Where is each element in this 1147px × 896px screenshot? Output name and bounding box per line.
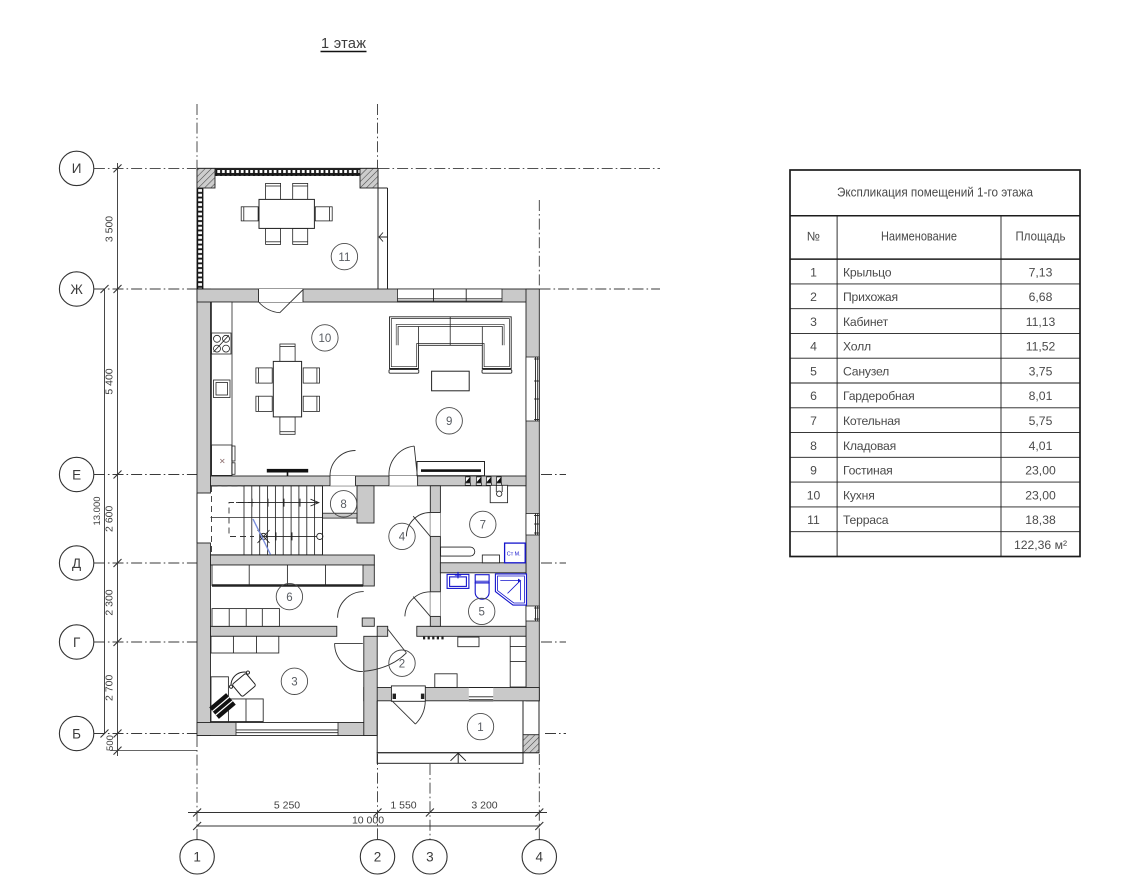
svg-text:3: 3: [810, 315, 817, 329]
svg-text:11: 11: [807, 513, 820, 527]
svg-text:Прихожая: Прихожая: [843, 290, 898, 304]
svg-text:23,00: 23,00: [1025, 488, 1056, 502]
svg-text:13.000: 13.000: [92, 496, 103, 525]
svg-text:Гостиная: Гостиная: [843, 464, 893, 478]
svg-text:500: 500: [105, 735, 116, 751]
svg-text:3 200: 3 200: [471, 800, 497, 812]
svg-text:3: 3: [291, 677, 297, 689]
svg-text:3: 3: [426, 850, 434, 865]
svg-text:4: 4: [810, 340, 817, 354]
svg-text:2: 2: [810, 290, 817, 304]
svg-text:1: 1: [810, 265, 817, 279]
svg-text:Крыльцо: Крыльцо: [843, 265, 892, 279]
svg-text:2 600: 2 600: [104, 506, 116, 532]
svg-text:7: 7: [480, 520, 486, 532]
svg-text:Гардеробная: Гардеробная: [843, 389, 915, 403]
svg-text:18,38: 18,38: [1025, 513, 1056, 527]
svg-text:Г: Г: [73, 635, 81, 650]
svg-text:5 400: 5 400: [104, 368, 116, 394]
svg-text:Ст М.: Ст М.: [507, 552, 521, 558]
svg-text:5: 5: [478, 607, 484, 619]
svg-text:2 300: 2 300: [104, 589, 116, 615]
svg-text:10: 10: [319, 333, 332, 345]
svg-text:6,68: 6,68: [1029, 290, 1053, 304]
svg-text:Кладовая: Кладовая: [843, 439, 896, 453]
svg-text:4,01: 4,01: [1029, 439, 1053, 453]
svg-text:6: 6: [286, 592, 292, 604]
svg-text:1 этаж: 1 этаж: [321, 36, 366, 52]
svg-text:Экспликация помещений 1-го эта: Экспликация помещений 1-го этажа: [837, 185, 1034, 200]
svg-text:8: 8: [810, 439, 817, 453]
svg-text:2: 2: [374, 850, 382, 865]
svg-text:Наименование: Наименование: [881, 229, 957, 243]
svg-text:Кабинет: Кабинет: [843, 315, 889, 329]
svg-text:И: И: [72, 161, 82, 176]
svg-text:1: 1: [477, 722, 483, 734]
svg-text:Терраса: Терраса: [843, 513, 889, 527]
svg-text:5 250: 5 250: [274, 800, 300, 812]
svg-text:8,01: 8,01: [1029, 389, 1053, 403]
svg-text:23,00: 23,00: [1025, 464, 1056, 478]
svg-text:2: 2: [399, 658, 405, 670]
svg-text:4: 4: [536, 850, 544, 865]
svg-text:11,13: 11,13: [1026, 315, 1056, 329]
svg-text:5: 5: [810, 364, 817, 378]
svg-text:8: 8: [340, 499, 346, 511]
svg-text:№: №: [807, 229, 820, 243]
svg-text:122,36 м²: 122,36 м²: [1014, 538, 1067, 552]
svg-text:11: 11: [338, 252, 350, 264]
svg-text:Д: Д: [72, 556, 81, 571]
svg-text:7: 7: [810, 414, 817, 428]
svg-text:Санузел: Санузел: [843, 364, 889, 378]
svg-text:6: 6: [810, 389, 817, 403]
svg-text:Кухня: Кухня: [843, 488, 875, 502]
svg-text:9: 9: [446, 416, 452, 428]
svg-text:10: 10: [807, 488, 821, 502]
svg-text:11,52: 11,52: [1026, 340, 1056, 354]
svg-text:7,13: 7,13: [1029, 265, 1053, 279]
svg-text:9: 9: [810, 464, 817, 478]
svg-text:4: 4: [399, 532, 406, 544]
svg-text:Холл: Холл: [843, 340, 871, 354]
svg-text:Ж: Ж: [70, 282, 83, 297]
svg-text:Е: Е: [72, 467, 81, 482]
svg-text:10 000: 10 000: [352, 815, 384, 827]
svg-text:3 500: 3 500: [104, 216, 116, 242]
svg-text:1 550: 1 550: [390, 800, 416, 812]
svg-text:Б: Б: [72, 726, 81, 741]
svg-text:Котельная: Котельная: [843, 414, 900, 428]
svg-text:3,75: 3,75: [1029, 364, 1053, 378]
svg-text:1: 1: [193, 850, 201, 865]
svg-text:5,75: 5,75: [1029, 414, 1053, 428]
svg-text:Площадь: Площадь: [1016, 229, 1066, 243]
svg-text:2 700: 2 700: [104, 675, 116, 701]
